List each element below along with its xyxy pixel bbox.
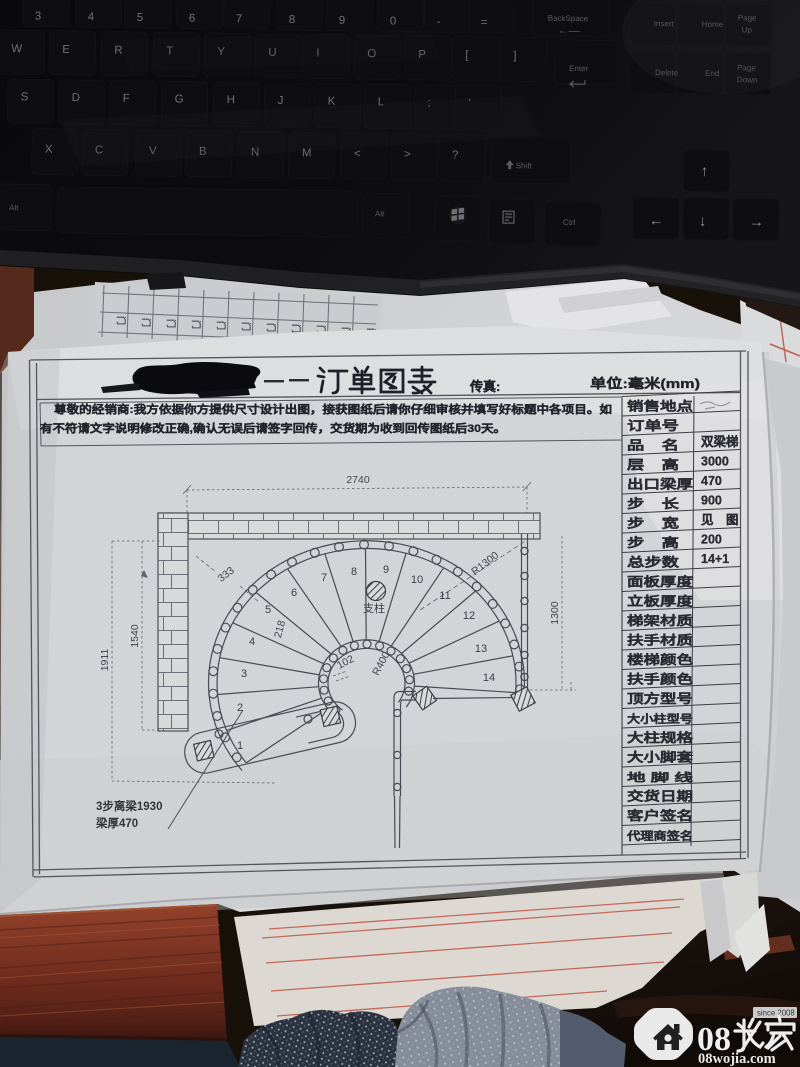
svg-text:13: 13	[475, 643, 487, 655]
svg-text:←: ←	[649, 212, 664, 229]
svg-text:传真:: 传真:	[469, 379, 500, 394]
svg-text:D: D	[72, 92, 80, 104]
svg-text:14+1: 14+1	[701, 552, 729, 566]
svg-text:有不符请文字说明修改正确,确认无误后请签字回传，交货期为收到: 有不符请文字说明修改正确,确认无误后请签字回传，交货期为收到回传图纸后30天。	[40, 421, 506, 435]
svg-text:门: 门	[216, 321, 227, 330]
svg-text:订单号: 订单号	[627, 418, 679, 433]
svg-text:9: 9	[339, 15, 346, 27]
svg-text:品 名: 品 名	[627, 438, 679, 453]
svg-text:销售地点: 销售地点	[627, 399, 694, 414]
svg-text:↑: ↑	[701, 163, 709, 180]
svg-text:1300: 1300	[549, 601, 561, 625]
svg-text:门: 门	[241, 322, 252, 331]
svg-text:1: 1	[237, 740, 243, 752]
svg-text:总步数: 总步数	[627, 555, 680, 570]
svg-text:客户签名: 客户签名	[626, 808, 693, 823]
svg-text:梯架材质: 梯架材质	[627, 613, 694, 628]
svg-text:J: J	[278, 95, 284, 107]
svg-text:2740: 2740	[346, 474, 370, 486]
svg-text:Enter: Enter	[569, 64, 589, 73]
svg-text:双梁梯: 双梁梯	[700, 434, 739, 449]
svg-text:门: 门	[116, 316, 127, 325]
svg-text:470: 470	[701, 474, 722, 488]
svg-text:步 高: 步 高	[627, 535, 679, 550]
svg-text:G: G	[175, 93, 184, 105]
svg-text:=: =	[481, 17, 488, 29]
svg-text:Shift: Shift	[516, 161, 533, 170]
svg-text:900: 900	[701, 494, 722, 508]
svg-text:门: 门	[166, 319, 177, 328]
svg-text:步 宽: 步 宽	[627, 516, 680, 531]
svg-text:E: E	[62, 44, 70, 56]
svg-text:地 脚 线: 地 脚 线	[627, 770, 693, 784]
svg-text:10: 10	[411, 574, 423, 586]
svg-text:代理商签名: 代理商签名	[626, 829, 693, 843]
svg-text:11: 11	[439, 590, 450, 602]
svg-text:扶手材质: 扶手材质	[627, 633, 694, 648]
svg-text:3: 3	[241, 668, 247, 680]
svg-text:步 长: 步 长	[627, 496, 680, 511]
svg-text:交货日期: 交货日期	[627, 789, 693, 804]
svg-text:门: 门	[291, 324, 302, 333]
svg-text:9: 9	[383, 564, 389, 576]
svg-text:0: 0	[390, 15, 397, 27]
svg-text:1540: 1540	[129, 624, 141, 648]
svg-text:Alt: Alt	[375, 209, 385, 218]
svg-text:R: R	[114, 45, 122, 57]
svg-text:8: 8	[289, 14, 296, 26]
svg-text:大小脚套: 大小脚套	[627, 750, 694, 765]
svg-text:1911: 1911	[99, 649, 111, 672]
svg-text:面板厚度: 面板厚度	[627, 574, 694, 589]
svg-text:→: →	[749, 213, 764, 230]
svg-text:3: 3	[35, 10, 42, 22]
svg-text:楼梯颜色: 楼梯颜色	[627, 652, 694, 667]
svg-text:H: H	[227, 94, 235, 106]
svg-text:大柱规格: 大柱规格	[627, 730, 694, 745]
svg-text:200: 200	[701, 533, 722, 547]
svg-text:支柱: 支柱	[363, 601, 385, 615]
svg-text:7: 7	[236, 13, 243, 25]
svg-text:Alt: Alt	[9, 203, 19, 212]
svg-text:3000: 3000	[701, 455, 729, 469]
svg-text:5: 5	[137, 12, 144, 24]
svg-text:4: 4	[249, 636, 255, 648]
svg-text:见 图: 见 图	[701, 513, 739, 527]
svg-text:14: 14	[483, 672, 495, 684]
svg-text:顶方型号: 顶方型号	[627, 691, 693, 706]
svg-text:扶手颜色: 扶手颜色	[627, 672, 694, 687]
svg-text:BackSpace: BackSpace	[548, 14, 589, 24]
svg-text:立板厚度: 立板厚度	[627, 594, 694, 609]
svg-text:单位:毫米(mm): 单位:毫米(mm)	[590, 376, 700, 391]
svg-text:7: 7	[321, 572, 327, 584]
svg-text:3步离梁1930: 3步离梁1930	[96, 799, 162, 813]
svg-text:-: -	[437, 16, 441, 28]
svg-text:08wojia.com: 08wojia.com	[698, 1051, 776, 1067]
svg-text:层 高: 层 高	[627, 457, 679, 472]
svg-text:]: ]	[513, 50, 516, 62]
svg-text:X: X	[45, 144, 53, 156]
svg-text:?: ?	[452, 149, 459, 161]
svg-text:←—: ←—	[558, 25, 580, 37]
svg-text:F: F	[123, 93, 130, 105]
svg-text:大小柱型号: 大小柱型号	[627, 712, 693, 726]
svg-text:↓: ↓	[699, 213, 707, 230]
svg-text:<: <	[354, 148, 361, 160]
svg-text:出口梁厚: 出口梁厚	[627, 477, 694, 492]
svg-text:梁厚470: 梁厚470	[95, 816, 138, 830]
svg-text:4: 4	[88, 11, 95, 23]
svg-text:门: 门	[266, 323, 277, 332]
svg-text:6: 6	[291, 587, 297, 599]
svg-text:6: 6	[189, 13, 196, 25]
svg-text:门: 门	[191, 320, 202, 329]
svg-text:8: 8	[351, 566, 357, 578]
svg-text:S: S	[21, 91, 29, 103]
svg-text:W: W	[11, 43, 22, 55]
svg-text:>: >	[404, 149, 411, 161]
svg-text:12: 12	[463, 610, 475, 622]
svg-text:5: 5	[265, 604, 271, 616]
svg-text:尊敬的经销商:我方依据你方提供尺寸设计出图，接获图纸后请你仔: 尊敬的经销商:我方依据你方提供尺寸设计出图，接获图纸后请你仔细审核并填写好标题中…	[54, 402, 612, 416]
svg-text:Ctrl: Ctrl	[563, 218, 576, 227]
svg-text:门: 门	[141, 318, 152, 327]
svg-text:since 2008: since 2008	[757, 1009, 795, 1018]
